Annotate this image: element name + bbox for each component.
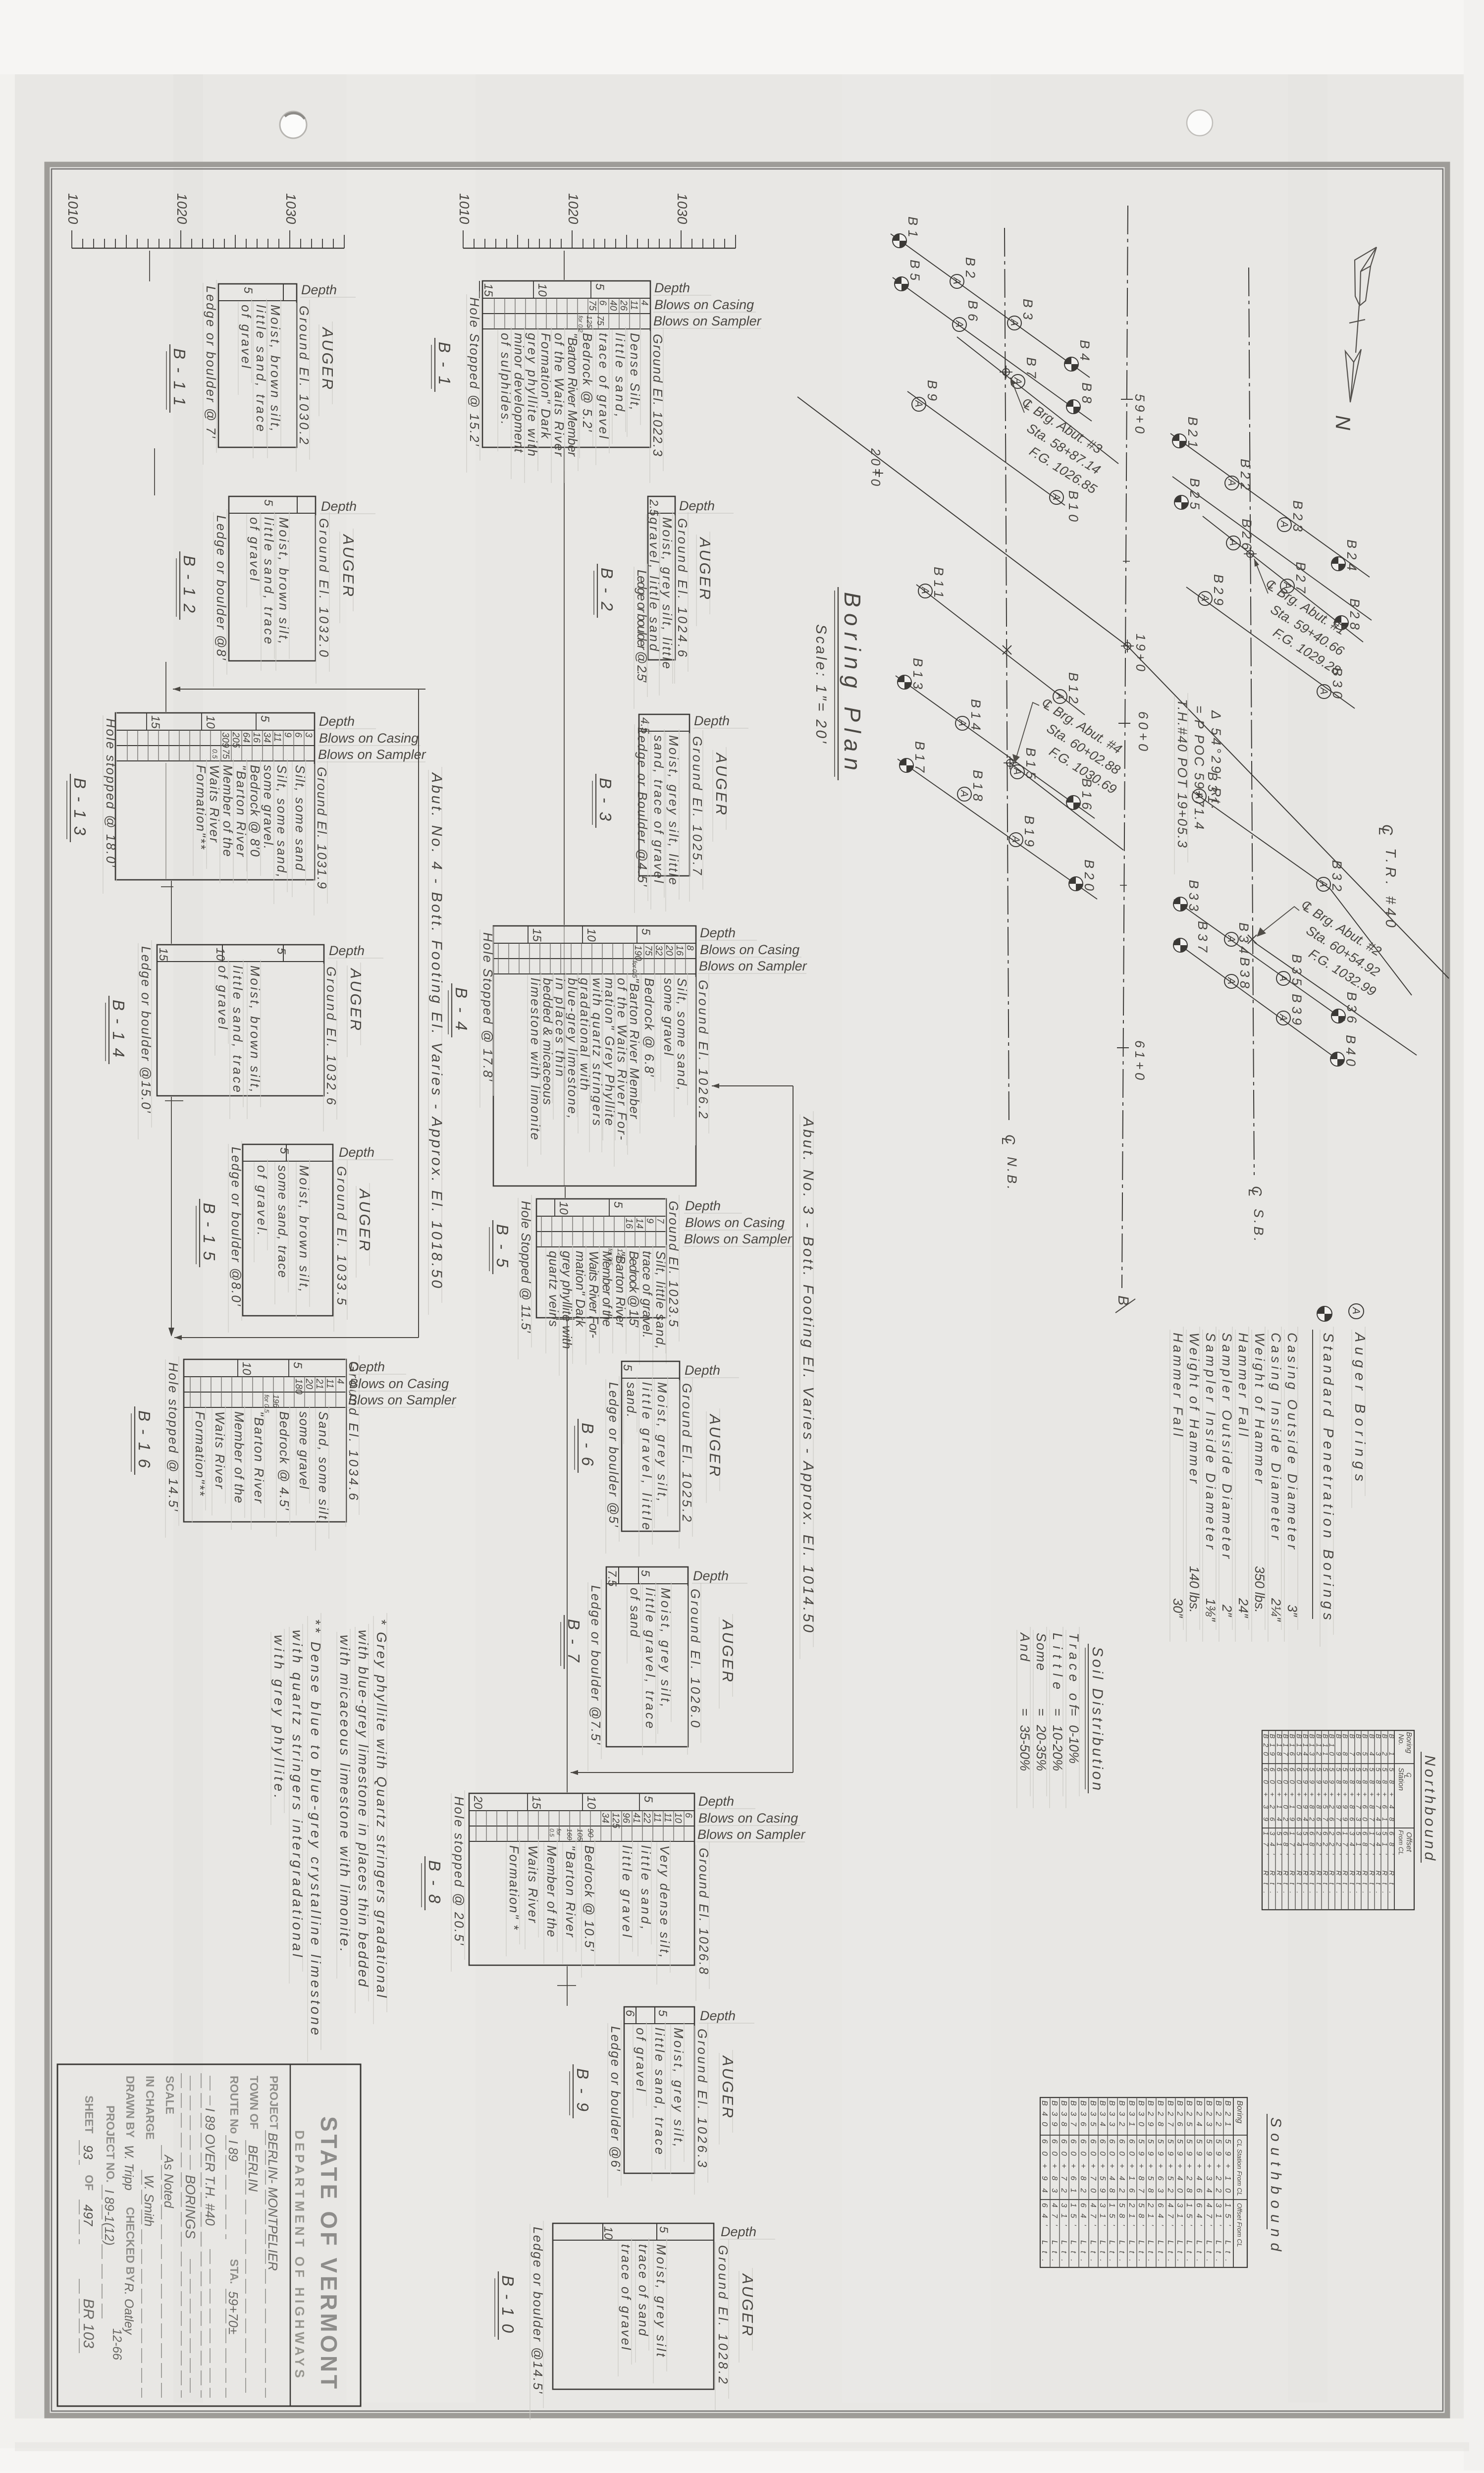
svg-text:A: A [1350, 1306, 1362, 1314]
svg-text:R. Oatley: R. Oatley [122, 2283, 136, 2335]
svg-text:Hole Stopped @ 11.5′: Hole Stopped @ 11.5′ [519, 1201, 533, 1333]
svg-text:4: 4 [639, 300, 649, 306]
svg-text:of gravel: of gravel [247, 517, 262, 581]
svg-text:B37: B37 [1195, 921, 1210, 953]
svg-text:Depth: Depth [685, 1198, 721, 1213]
svg-text:5: 5 [277, 1147, 291, 1154]
svg-text:22: 22 [641, 1812, 652, 1824]
svg-text:1030: 1030 [283, 193, 299, 224]
svg-text:A: A [1010, 835, 1021, 843]
svg-text:A: A [1225, 976, 1237, 984]
svg-text:Formation"**: Formation"** [194, 765, 209, 850]
svg-text:with micaceous limestone with: with micaceous limestone with limonite. [337, 1635, 353, 1952]
svg-text:B39: B39 [1289, 994, 1304, 1025]
svg-text:190: 190 [633, 945, 643, 961]
svg-text:Bedrock @ 4.5′: Bedrock @ 4.5′ [277, 1411, 292, 1510]
svg-text:grey phyllite with: grey phyllite with [560, 1251, 575, 1349]
svg-text:11: 11 [272, 732, 282, 742]
svg-text:AUGER: AUGER [696, 537, 714, 599]
svg-text:5: 5 [656, 2010, 669, 2017]
svg-text:6: 6 [683, 1813, 693, 1818]
svg-text:B23: B23 [1290, 500, 1305, 532]
svg-text:A: A [1277, 973, 1289, 981]
svg-text:5: 5 [262, 499, 275, 506]
svg-text:A: A [1051, 492, 1062, 500]
svg-text:sand, trace of gravel: sand, trace of gravel [651, 735, 666, 883]
svg-text:A: A [1278, 520, 1290, 528]
svg-text:B-5: B-5 [493, 1224, 512, 1268]
svg-text:Ground El. 1026.0: Ground El. 1026.0 [688, 1589, 703, 1728]
svg-text:11: 11 [662, 1813, 673, 1823]
svg-text:10: 10 [535, 283, 549, 297]
svg-text:From CL: From CL [1397, 1830, 1405, 1855]
svg-text:IN CHARGE: IN CHARGE [144, 2076, 157, 2140]
svg-text:some gravel: some gravel [661, 978, 676, 1056]
svg-text:B20: B20 [1082, 860, 1097, 891]
svg-text:B22: B22 [1214, 2100, 1222, 2126]
svg-text:350 lbs.: 350 lbs. [1252, 1566, 1267, 1613]
svg-text:10: 10 [213, 948, 227, 961]
svg-text:ROUTE No: ROUTE No [228, 2076, 241, 2134]
svg-text:Blows on Sampler: Blows on Sampler [318, 747, 426, 762]
svg-text:309: 309 [220, 732, 230, 748]
svg-text:Ground El. 1025.2: Ground El. 1025.2 [680, 1383, 694, 1522]
svg-text:B14: B14 [968, 699, 983, 730]
svg-text:=: = [1017, 1708, 1032, 1716]
svg-text:B20: B20 [1262, 1734, 1270, 1756]
svg-text:30″: 30″ [1170, 1598, 1185, 1618]
svg-text:Offset: Offset [1405, 1832, 1413, 1852]
svg-text:B40: B40 [1040, 2100, 1049, 2126]
svg-text:B32: B32 [1329, 860, 1344, 891]
svg-text:B36: B36 [1079, 2100, 1087, 2126]
svg-text:5: 5 [291, 1362, 304, 1369]
svg-text:B-6: B-6 [579, 1423, 597, 1466]
svg-text:little sand, trace: little sand, trace [262, 517, 276, 644]
svg-text:trace of gravel.: trace of gravel. [640, 1251, 655, 1338]
svg-text:little sand, trace: little sand, trace [254, 305, 268, 431]
svg-text:B27: B27 [1166, 2100, 1174, 2127]
svg-text:AUGER: AUGER [713, 752, 730, 815]
svg-text:20: 20 [664, 945, 674, 956]
svg-text:B36: B36 [1344, 992, 1359, 1023]
svg-text:trace of sand: trace of sand [636, 2244, 651, 2337]
svg-text:of gravel: of gravel [634, 2028, 648, 2092]
svg-text:Hammer Fall: Hammer Fall [1170, 1333, 1185, 1437]
svg-text:15: 15 [481, 283, 495, 297]
svg-text:some sand, trace: some sand, trace [275, 1165, 290, 1278]
svg-text:B35: B35 [1289, 954, 1304, 986]
svg-text:"Barton River Member: "Barton River Member [565, 333, 580, 457]
svg-text:Ground El. 1024.6: Ground El. 1024.6 [675, 518, 690, 657]
svg-text:Boring: Boring [1235, 2100, 1244, 2123]
svg-text:11: 11 [324, 1379, 335, 1389]
svg-text:0-10%: 0-10% [1066, 1725, 1081, 1764]
svg-text:10: 10 [240, 1362, 253, 1375]
svg-text:Waits River: Waits River [207, 765, 222, 843]
svg-text:75: 75 [643, 945, 653, 956]
svg-text:32: 32 [653, 945, 664, 956]
svg-text:"Barton River: "Barton River [234, 765, 249, 857]
svg-text:some gravel: some gravel [297, 1411, 312, 1489]
svg-text:5: 5 [274, 948, 288, 955]
svg-text:B33: B33 [1186, 880, 1201, 911]
svg-text:Blows on Casing: Blows on Casing [349, 1376, 449, 1391]
svg-text:B25: B25 [1187, 478, 1202, 510]
svg-text:2″: 2″ [1219, 1604, 1234, 1617]
svg-text:Ground El. 1032.6: Ground El. 1032.6 [324, 967, 339, 1105]
svg-text:Blows on Sampler: Blows on Sampler [653, 314, 762, 328]
svg-text:A: A [951, 276, 962, 284]
svg-text:15: 15 [157, 948, 170, 961]
svg-text:A: A [1226, 478, 1237, 486]
svg-text:41: 41 [631, 1813, 641, 1823]
svg-text:9: 9 [282, 732, 293, 738]
svg-text:3″: 3″ [1285, 1605, 1300, 1617]
svg-text:And: And [1017, 1632, 1032, 1662]
svg-text:Depth: Depth [694, 713, 730, 728]
svg-text:3: 3 [303, 732, 314, 738]
svg-text:"Barton River: "Barton River [252, 1411, 266, 1504]
svg-text:B35: B35 [1089, 2100, 1097, 2126]
svg-text:Depth: Depth [319, 714, 355, 729]
svg-text:Northbound: Northbound [1422, 1755, 1438, 1861]
svg-text:SCALE: SCALE [163, 2076, 176, 2114]
svg-text:B-2: B-2 [598, 568, 616, 611]
svg-text:10: 10 [673, 1813, 683, 1824]
svg-text:B-9: B-9 [574, 2068, 592, 2111]
svg-text:64: 64 [241, 732, 251, 743]
svg-text:for: for [555, 1828, 562, 1836]
svg-text:6: 6 [597, 300, 608, 306]
svg-text:CHECKED BY: CHECKED BY [124, 2207, 137, 2282]
svg-text:Boring: Boring [1405, 1732, 1413, 1754]
svg-text:B34: B34 [1098, 2100, 1107, 2126]
svg-text:B25: B25 [1185, 2100, 1193, 2126]
svg-text:A: A [1277, 1013, 1289, 1021]
svg-text:A: A [1008, 318, 1020, 326]
svg-text:12-66: 12-66 [110, 2328, 124, 2360]
svg-text:5: 5 [657, 2226, 670, 2233]
svg-text:B12: B12 [1066, 672, 1081, 703]
svg-text:B21: B21 [1185, 417, 1200, 448]
svg-text:10-20%: 10-20% [1050, 1725, 1065, 1771]
svg-text:Ledge or boulder @5′: Ledge or boulder @5′ [606, 1382, 621, 1527]
svg-text:L: L [1376, 827, 1392, 836]
svg-text:5: 5 [641, 1796, 655, 1803]
svg-text:Ledge or boulder @ 2.5′: Ledge or boulder @ 2.5′ [635, 570, 649, 683]
svg-text:16: 16 [674, 945, 685, 956]
svg-text:0.5: 0.5 [211, 749, 219, 759]
svg-text:10: 10 [557, 1201, 570, 1215]
svg-text:205: 205 [230, 732, 241, 748]
svg-text:AUGER: AUGER [706, 1413, 724, 1476]
svg-text:40: 40 [608, 300, 618, 311]
svg-text:11: 11 [629, 300, 639, 310]
svg-text:Depth: Depth [700, 2008, 736, 2023]
svg-text:Blows on Casing: Blows on Casing [319, 731, 419, 746]
svg-text:5: 5 [638, 1570, 652, 1577]
svg-text:Depth: Depth [349, 1359, 385, 1374]
svg-text:B-8: B-8 [425, 1860, 444, 1904]
svg-text:Bedrock @ 8′0: Bedrock @ 8′0 [248, 765, 263, 857]
svg-text:of the Waits River: of the Waits River [552, 333, 567, 457]
svg-text:16: 16 [624, 1218, 634, 1229]
svg-text:for 0.5: for 0.5 [263, 1395, 270, 1413]
svg-text:I 89: I 89 [226, 2140, 241, 2161]
svg-text:STA.: STA. [228, 2259, 241, 2284]
svg-text:B29: B29 [1211, 574, 1226, 605]
svg-text:B37: B37 [1069, 2100, 1077, 2127]
svg-text:Blows on Sampler: Blows on Sampler [348, 1393, 457, 1407]
svg-text:Depth: Depth [698, 1794, 734, 1809]
svg-text:AUGER: AUGER [719, 1619, 737, 1682]
svg-text:A: A [1225, 934, 1237, 942]
svg-text:B28: B28 [1347, 598, 1362, 630]
svg-text:B34: B34 [1236, 922, 1251, 954]
svg-text:10: 10 [204, 715, 217, 729]
svg-text:Station: Station [1397, 1768, 1405, 1791]
svg-text:B10: B10 [1066, 490, 1081, 522]
svg-text:0.5: 0.5 [548, 1828, 555, 1837]
svg-text:Waits River: Waits River [212, 1411, 227, 1489]
svg-text:of gravel: of gravel [215, 966, 230, 1029]
svg-text:PROJECT: PROJECT [267, 2076, 280, 2130]
svg-text:Depth: Depth [679, 498, 715, 513]
svg-text:Blows on Sampler: Blows on Sampler [684, 1232, 793, 1246]
svg-text:CL Station From CL: CL Station From CL [1236, 2139, 1243, 2196]
svg-text:A: A [1199, 593, 1211, 601]
svg-text:1020: 1020 [174, 193, 190, 224]
svg-text:5: 5 [639, 928, 652, 935]
svg-text:"Barton River: "Barton River [563, 1845, 578, 1937]
svg-text:Depth: Depth [693, 1568, 729, 1583]
svg-text:Ground El. 1025.7: Ground El. 1025.7 [690, 736, 705, 876]
svg-text:Depth: Depth [329, 943, 365, 958]
svg-text:7: 7 [655, 1218, 665, 1224]
svg-text:B30: B30 [1137, 2100, 1145, 2126]
svg-text:STATE OF VERMONT: STATE OF VERMONT [316, 2116, 342, 2389]
svg-text:A: A [1227, 538, 1239, 546]
svg-text:Moist, grey silt: Moist, grey silt [654, 2244, 669, 2358]
svg-text:10: 10 [584, 1796, 598, 1809]
svg-text:15: 15 [530, 1796, 543, 1809]
svg-text:B19: B19 [1022, 815, 1037, 847]
svg-text:=: = [1066, 1708, 1081, 1716]
svg-text:10: 10 [584, 928, 598, 942]
svg-text:B40: B40 [1343, 1035, 1358, 1066]
svg-text:quartz veins: quartz veins [546, 1251, 561, 1327]
svg-text:BERLIN- MONTPELIER: BERLIN- MONTPELIER [265, 2133, 280, 2271]
svg-text:"Barton River: "Barton River [613, 1251, 628, 1327]
svg-text:Abut. No. 3 - Bott. Footing El: Abut. No. 3 - Bott. Footing El. Varies -… [800, 1116, 816, 1632]
svg-text:DRAWN BY: DRAWN BY [124, 2076, 137, 2138]
svg-text:93: 93 [81, 2145, 96, 2159]
svg-text:W. Tripp: W. Tripp [122, 2145, 136, 2191]
svg-text:B24: B24 [1344, 539, 1359, 571]
svg-text:Sampler Inside Diameter: Sampler Inside Diameter [1203, 1333, 1218, 1550]
svg-text:limestone with limonite: limestone with limonite [528, 978, 543, 1140]
svg-text:10: 10 [601, 2226, 615, 2240]
svg-text:AUGER: AUGER [347, 968, 365, 1030]
svg-text:I 89-1(12): I 89-1(12) [102, 2190, 117, 2246]
svg-text:B38: B38 [1237, 957, 1252, 988]
svg-text:sand.: sand. [624, 1382, 639, 1417]
svg-text:Ground El. 1028.2: Ground El. 1028.2 [716, 2245, 731, 2384]
svg-text:As Noted: As Noted [161, 2154, 176, 2208]
svg-text:Abut. No. 4 - Bott. Footing El: Abut. No. 4 - Bott. Footing El. Varies -… [428, 772, 445, 1288]
svg-text:for: for [631, 961, 638, 968]
svg-text:A: A [956, 718, 968, 726]
svg-text:Depth: Depth [654, 280, 690, 295]
svg-text:N: N [1331, 415, 1355, 430]
svg-text:Silt, some sand,: Silt, some sand, [675, 978, 689, 1090]
svg-text:AUGER: AUGER [340, 534, 357, 596]
svg-text:180: 180 [293, 1379, 304, 1395]
svg-text:140 lbs.: 140 lbs. [1187, 1566, 1202, 1613]
svg-text:A: A [958, 789, 970, 797]
svg-text:Hammer Fall: Hammer Fall [1236, 1333, 1251, 1437]
svg-text:1010: 1010 [65, 193, 81, 224]
svg-text:= P POC 59+71.4: = P POC 59+71.4 [1192, 705, 1207, 829]
svg-text:Depth: Depth [700, 925, 736, 940]
svg-text:5: 5 [241, 287, 255, 294]
svg-text:B38: B38 [1060, 2100, 1068, 2126]
svg-text:Blows on Sampler: Blows on Sampler [697, 1827, 806, 1842]
svg-text:20-35%: 20-35% [1034, 1724, 1049, 1771]
svg-text:of gravel.: of gravel. [255, 1165, 269, 1236]
svg-text:A: A [1054, 692, 1065, 699]
svg-text:B26: B26 [1239, 519, 1254, 550]
svg-text:No.: No. [1397, 1734, 1405, 1745]
svg-text:A: A [954, 320, 965, 327]
svg-text:7.5: 7.5 [605, 1570, 619, 1587]
svg-text:B31: B31 [1205, 772, 1220, 803]
svg-text:T.H.#40 POT 19+05.3: T.H.#40 POT 19+05.3 [1175, 699, 1190, 848]
svg-text:5: 5 [621, 1364, 634, 1371]
svg-text:Ground El. 1033.5: Ground El. 1033.5 [334, 1166, 349, 1305]
svg-text:9: 9 [644, 1218, 655, 1224]
svg-text:with blue-grey limestone in pl: with blue-grey limestone in places thin … [356, 1630, 371, 1987]
svg-text:Bedrock @ 6.8′: Bedrock @ 6.8′ [642, 978, 657, 1077]
svg-text:Δ 54°29′ Rt.: Δ 54°29′ Rt. [1209, 710, 1223, 809]
svg-text:B39: B39 [1050, 2100, 1059, 2126]
svg-text:AUGER: AUGER [739, 2273, 756, 2336]
svg-text:Ledge or boulder @ 7′: Ledge or boulder @ 7′ [204, 286, 218, 438]
svg-text:125: 125 [585, 316, 593, 328]
svg-text:24″: 24″ [1236, 1598, 1251, 1618]
svg-text:trace of gravel: trace of gravel [619, 2244, 634, 2350]
svg-text:Bedrock @ 5.2′: Bedrock @ 5.2′ [580, 333, 595, 432]
svg-text:I 89 OVER T.H. #40: I 89 OVER T.H. #40 [203, 2108, 217, 2226]
svg-text:34: 34 [262, 732, 272, 743]
svg-text:AUGER: AUGER [319, 326, 336, 389]
svg-text:1030: 1030 [675, 193, 690, 224]
svg-text:B23: B23 [1205, 2100, 1213, 2126]
svg-text:Dense Silt,: Dense Silt, [628, 333, 642, 410]
svg-text:Boring Plan: Boring Plan [840, 592, 865, 770]
svg-text:B-3: B-3 [596, 778, 615, 821]
svg-text:Some: Some [1034, 1633, 1049, 1670]
svg-text:Blows on Casing: Blows on Casing [700, 942, 799, 957]
svg-text:L: L [1246, 1189, 1261, 1197]
svg-text:5: 5 [611, 1201, 625, 1208]
svg-text:A: A [1318, 687, 1329, 695]
svg-text:Silt, some sand: Silt, some sand [293, 765, 308, 871]
svg-text:Ground El. 1026.2: Ground El. 1026.2 [696, 980, 711, 1119]
svg-text:Waits River: Waits River [526, 1845, 540, 1923]
svg-text:Depth: Depth [339, 1145, 374, 1160]
svg-text:B-4: B-4 [452, 987, 471, 1030]
svg-text:5: 5 [258, 715, 271, 722]
svg-text:4: 4 [335, 1379, 345, 1384]
svg-text:Ground El. 1026.3: Ground El. 1026.3 [695, 2029, 710, 2168]
svg-text:A: A [1318, 879, 1329, 887]
svg-text:SHEET: SHEET [83, 2096, 96, 2134]
svg-text:Blows on Sampler: Blows on Sampler [699, 959, 807, 973]
svg-text:Depth: Depth [721, 2224, 756, 2239]
svg-text:34: 34 [600, 1813, 610, 1823]
svg-text:mation" Dark: mation" Dark [573, 1251, 588, 1328]
svg-text:Depth: Depth [685, 1363, 720, 1378]
svg-text:Offset From CL: Offset From CL [1236, 2203, 1243, 2247]
svg-text:14: 14 [634, 1218, 644, 1229]
svg-text:Member of the: Member of the [600, 1251, 615, 1327]
svg-text:B29: B29 [1146, 2100, 1155, 2126]
svg-text:11: 11 [652, 1813, 662, 1823]
svg-text:B26: B26 [1175, 2100, 1184, 2126]
svg-text:B22: B22 [1238, 459, 1253, 490]
svg-text:Casing Outside Diameter: Casing Outside Diameter [1285, 1333, 1300, 1550]
svg-text:PROJECT NO.: PROJECT NO. [104, 2105, 117, 2183]
svg-text:L: L [999, 1137, 1014, 1145]
svg-text:Moist, grey silt,: Moist, grey silt, [671, 2028, 686, 2147]
svg-text:Sand, some silt,: Sand, some silt, [316, 1411, 331, 1524]
svg-text:196: 196 [271, 1395, 280, 1408]
svg-text:1010: 1010 [457, 193, 472, 224]
svg-text:* Grey phyllite with Quartz st: * Grey phyllite with Quartz stringers gr… [374, 1619, 389, 1998]
svg-text:497: 497 [81, 2204, 96, 2227]
svg-text:B-1: B-1 [435, 342, 454, 385]
svg-text:16: 16 [251, 732, 262, 743]
svg-text:BERLIN: BERLIN [246, 2145, 261, 2192]
svg-text:B17: B17 [912, 741, 927, 773]
svg-text:6: 6 [623, 2010, 636, 2017]
svg-text:90: 90 [586, 1828, 594, 1837]
svg-text:=: = [1050, 1708, 1065, 1716]
svg-text:B13: B13 [910, 658, 925, 689]
svg-text:Waits River For-: Waits River For- [586, 1251, 601, 1338]
svg-text:Depth: Depth [301, 282, 337, 297]
svg-text:B11: B11 [931, 567, 946, 598]
svg-text:21: 21 [314, 1378, 324, 1389]
svg-text:0.5: 0.5 [631, 969, 638, 978]
svg-text:8: 8 [685, 945, 695, 951]
svg-text:75: 75 [595, 316, 605, 326]
svg-text:of sulphides.: of sulphides. [498, 333, 513, 425]
svg-text:1020: 1020 [566, 193, 581, 224]
svg-text:15: 15 [530, 928, 543, 942]
svg-text:A: A [919, 586, 931, 594]
svg-text:little sand, trace: little sand, trace [652, 2028, 667, 2154]
svg-text:6: 6 [293, 732, 303, 738]
svg-text:125: 125 [610, 1813, 621, 1828]
svg-text:5: 5 [593, 283, 606, 290]
svg-text:=: = [1034, 1708, 1049, 1716]
svg-text:20: 20 [471, 1795, 484, 1809]
svg-text:trace of gravel: trace of gravel [596, 333, 611, 439]
svg-text:B24: B24 [1195, 2100, 1203, 2126]
